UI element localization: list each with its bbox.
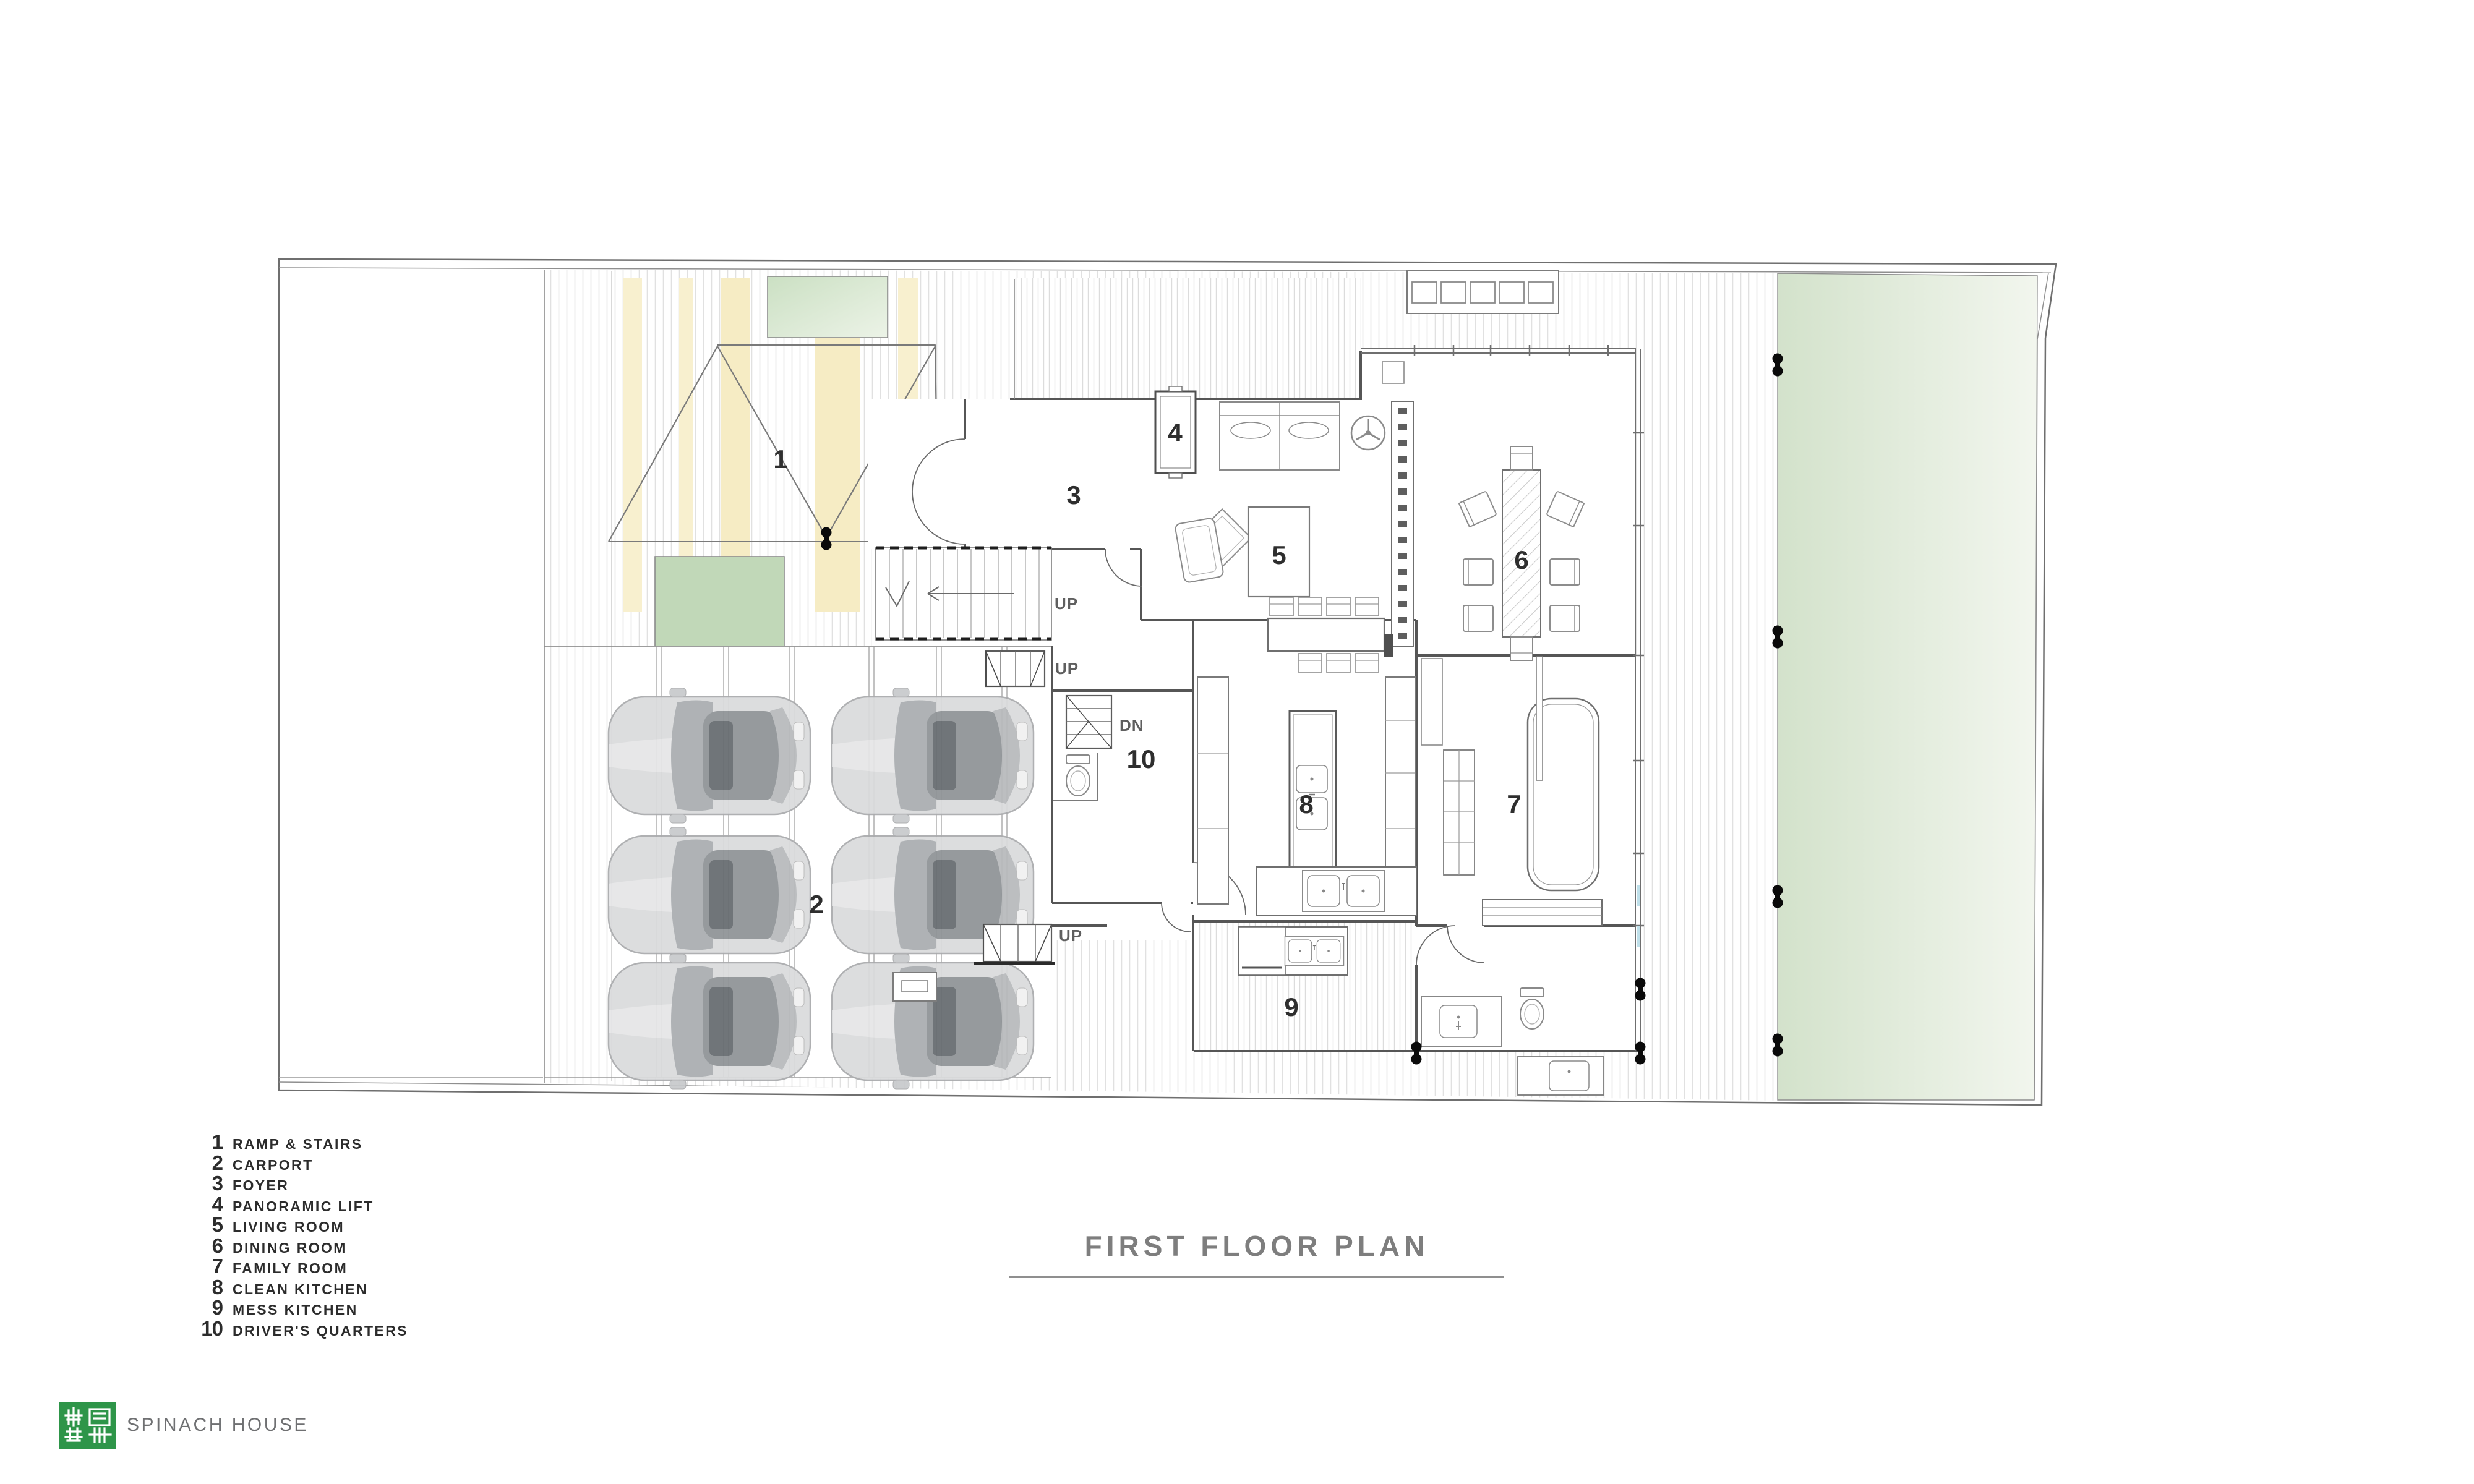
legend-number: 3 (186, 1172, 223, 1195)
up-stair-widget-top (986, 651, 1045, 686)
stool-icon (1355, 597, 1379, 616)
legend-item: 10 DRIVER'S QUARTERS (186, 1317, 408, 1338)
sheet-title: FIRST FLOOR PLAN (1009, 1229, 1504, 1263)
stool-icon (1327, 654, 1350, 672)
room-label-mess: 9 (1284, 992, 1298, 1021)
car-icon (832, 688, 1034, 823)
sofa (1220, 402, 1340, 470)
car-icon (609, 954, 810, 1089)
room-label-dining: 6 (1514, 545, 1528, 574)
toilet-icon (1520, 988, 1544, 1029)
legend-label: FOYER (233, 1177, 289, 1194)
floor-plan-sheet: { "title": { "text": "FIRST FLOOR PLAN" … (0, 0, 2474, 1484)
media-wall (1392, 401, 1413, 646)
breakfast-bar (1268, 618, 1384, 651)
sink-icon (1303, 871, 1384, 911)
car-icon (609, 688, 810, 823)
outdoor-sink (1518, 1057, 1604, 1095)
legend-number: 4 (186, 1193, 223, 1216)
legend-label: DINING ROOM (233, 1240, 347, 1256)
planter-top (768, 276, 888, 338)
chair-icon (1550, 605, 1580, 631)
legend-item: 5 LIVING ROOM (186, 1213, 408, 1234)
legend-item: 6 DINING ROOM (186, 1234, 408, 1255)
chair-icon (1463, 605, 1493, 631)
toilet-icon (1066, 755, 1090, 796)
sink-icon (1285, 936, 1343, 966)
pantry-cabinet (1197, 677, 1228, 904)
up-annotation: UP (1059, 926, 1082, 945)
legend-label: RAMP & STAIRS (233, 1136, 363, 1153)
legend-number: 10 (186, 1317, 223, 1341)
legend-item: 4 PANORAMIC LIFT (186, 1193, 408, 1214)
car-icon (609, 827, 810, 962)
side-cabinet (1421, 659, 1442, 745)
room-label-kitchen: 8 (1299, 790, 1313, 819)
glass-tint (1637, 926, 1640, 947)
legend-label: CARPORT (233, 1157, 314, 1174)
legend-label: PANORAMIC LIFT (233, 1198, 374, 1215)
dn-stair-widget (1066, 696, 1111, 748)
stool-icon (1327, 597, 1350, 616)
room-label-foyer: 3 (1066, 480, 1081, 510)
room-label-living: 5 (1272, 540, 1286, 569)
glass-tint (1637, 885, 1640, 906)
legend-number: 5 (186, 1213, 223, 1237)
room-label-ramp: 1 (773, 445, 787, 474)
sheet-title-text: FIRST FLOOR PLAN (1085, 1230, 1429, 1262)
stool-icon (1298, 597, 1322, 616)
up-annotation: UP (1055, 659, 1079, 678)
chair-icon (1463, 559, 1493, 585)
mess-kitchen (1239, 927, 1348, 975)
chair-icon (1550, 559, 1580, 585)
carport (544, 646, 1051, 1089)
legend-number: 6 (186, 1234, 223, 1258)
legend-item: 9 MESS KITCHEN (186, 1296, 408, 1317)
legend-number: 8 (186, 1276, 223, 1299)
legend-item: 2 CARPORT (186, 1151, 408, 1172)
main-entry-stair (876, 547, 1051, 640)
family-shelving (1444, 750, 1475, 875)
brand-name: SPINACH HOUSE (127, 1415, 309, 1436)
legend-label: LIVING ROOM (233, 1219, 345, 1235)
stool-icon (1298, 654, 1322, 672)
up-stair-widget-bottom (974, 924, 1055, 963)
legend-item: 3 FOYER (186, 1172, 408, 1193)
legend-number: 1 (186, 1130, 223, 1154)
room-label-family: 7 (1507, 790, 1521, 819)
seal-logo-icon (59, 1402, 116, 1449)
stool-icon (1270, 597, 1293, 616)
title-underline (1009, 1276, 1504, 1278)
up-annotation: UP (1055, 594, 1078, 613)
legend-label: FAMILY ROOM (233, 1260, 348, 1277)
planter-lower (655, 556, 784, 652)
legend-item: 7 FAMILY ROOM (186, 1255, 408, 1276)
room-label-quarters: 10 (1127, 744, 1156, 774)
room-label-carport: 2 (809, 890, 823, 919)
legend: 1 RAMP & STAIRS 2 CARPORT 3 FOYER 4 PANO… (186, 1130, 408, 1337)
pillar (1384, 634, 1393, 657)
pergola-skylights (1407, 271, 1559, 313)
legend-item: 1 RAMP & STAIRS (186, 1130, 408, 1151)
legend-label: CLEAN KITCHEN (233, 1281, 368, 1298)
legend-number: 7 (186, 1255, 223, 1278)
room-label-lift: 4 (1168, 418, 1183, 447)
lawn (1778, 273, 2037, 1100)
stool-icon (1355, 654, 1379, 672)
legend-number: 2 (186, 1151, 223, 1175)
legend-item: 8 CLEAN KITCHEN (186, 1276, 408, 1297)
cabinet (1382, 362, 1404, 383)
window-seat (1483, 900, 1602, 926)
legend-label: MESS KITCHEN (233, 1302, 358, 1318)
dn-annotation: DN (1119, 716, 1144, 735)
pendant-light (1536, 657, 1543, 780)
studio-logo (59, 1402, 116, 1449)
legend-label: DRIVER'S QUARTERS (233, 1323, 408, 1339)
entry-canopy (1014, 278, 1361, 399)
legend-number: 9 (186, 1296, 223, 1320)
